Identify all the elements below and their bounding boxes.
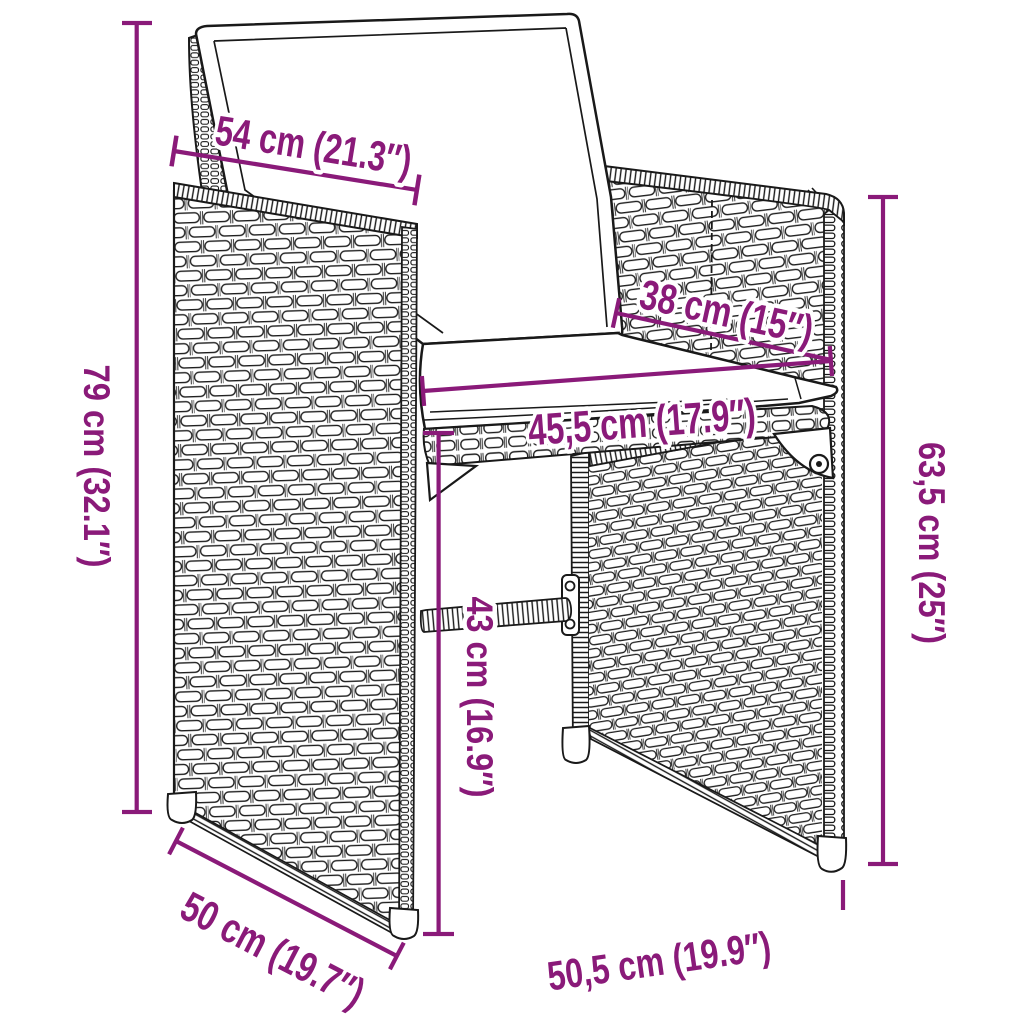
svg-text:79 cm (32.1″): 79 cm (32.1″) xyxy=(76,365,118,568)
svg-text:63,5 cm (25″): 63,5 cm (25″) xyxy=(911,442,953,644)
svg-text:43 cm (16.9″): 43 cm (16.9″) xyxy=(459,597,501,798)
